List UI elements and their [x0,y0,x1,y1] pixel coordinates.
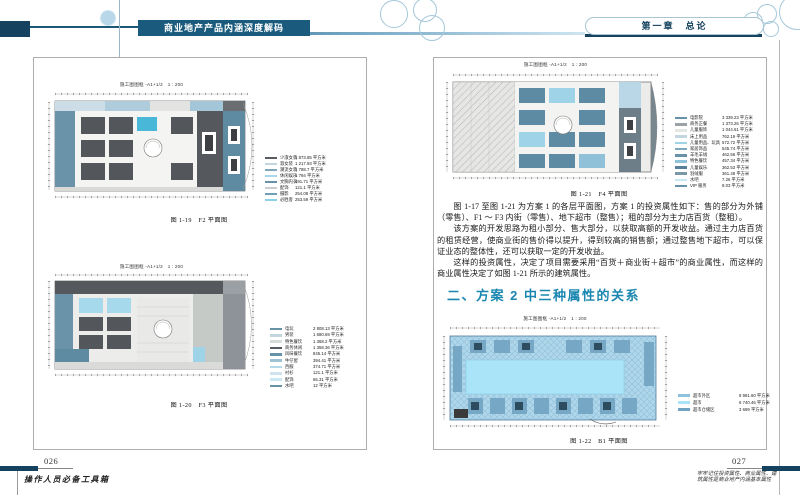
legend-swatch [675,179,687,182]
legend-value: 845.14 平方米 [313,351,340,357]
legend-swatch [270,328,282,331]
floor-plan-f3 [45,271,258,387]
deco-circle [380,0,408,28]
legend-label: 水吧 [285,383,313,389]
legend-swatch [265,199,277,202]
legend-swatch [675,123,687,126]
legend-b1: 超市外区 8 981.60 平方米 超市 6 740.46 平方米 超市仓储区 … [678,392,770,413]
legend-swatch [265,169,277,172]
legend-swatch [265,175,277,178]
legend-swatch [675,185,687,188]
legend-row: 超市仓储区 3 699 平方米 [678,406,770,413]
legend-swatch [265,193,277,196]
legend-value: 361.48 平方米 [722,171,749,177]
legend-label: 特色餐饮 [690,158,722,164]
legend-value: 1 368.2 平方米 [313,339,341,345]
legend-swatch [675,117,687,120]
legend-swatch [270,372,282,375]
legend-swatch [675,148,687,151]
legend-value: 762.19 平方米 [722,134,749,140]
left-margin-rule [17,470,18,495]
page-number-right: 027 [732,456,746,466]
legend-label: 配饰 [285,377,313,383]
legend-swatch [678,394,690,397]
legend-swatch [265,181,277,184]
legend-value: 1 044.61 平方米 [722,127,753,133]
legend-swatch [265,157,277,160]
legend-label: 床上用品 [690,134,722,140]
margin-note-line: 筑属性是商业地产内涵基本属性 [697,477,777,483]
caption-f4: 图 1-21 F4 平面图 [433,189,765,198]
legend-swatch [270,366,282,369]
legend-value: 394.41 平方米 [313,358,340,364]
chapter-label: 第一章 总论 [585,17,764,35]
legend-row: 超市外区 8 981.60 平方米 [678,392,770,399]
legend-value: 457.34 平方米 [722,158,749,164]
legend-swatch [265,163,277,166]
legend-value: 8 981.60 平方米 [739,393,770,399]
legend-value: 6 740.46 平方米 [739,400,770,406]
legend-value: 362.53 平方米 [722,165,749,171]
legend-value: 253.59 平方米 [295,197,322,203]
paragraph: 该方案的开发思路为租小部分、售大部分，以获取高额的开发收益。通过主力店百货的租赁… [437,223,763,257]
legend-f3: 电玩 2 808.13 平方米 男装 1 680.69 平方米 特色餐饮 1 3… [270,326,344,389]
legend-label: 风味餐饮 [285,351,313,357]
legend-value: 3 699 平方米 [739,407,764,413]
plan-title-f3: 施工图图框 -A1+1/2 1 : 200 [45,264,258,270]
deco-circle [419,15,445,41]
legend-label: 羽绒服 [690,171,722,177]
legend-f4: 电影院 3 339.23 平方米 商务正餐 1 373.26 平方米 儿童服饰 … [675,115,753,189]
legend-swatch [675,172,687,175]
legend-label: 儿童娱乐 [690,165,722,171]
legend-label: 超市 [693,400,739,406]
caption-f2: 图 1-19 F2 平面图 [33,215,365,224]
body-text: 图 1-17 至图 1-21 为方案 1 的各层平面图，方案 1 的投资属性如下… [437,201,763,279]
legend-swatch [270,353,282,356]
legend-row: 水吧 12 平方米 [270,383,344,389]
header-dot [100,10,116,26]
book-spread: 商业地产产品内涵深度解码 第一章 总论 施工图图框 -A1+1/2 1 : 20… [0,0,800,495]
legend-swatch [270,385,282,388]
caption-b1: 图 1-22 B1 平面图 [433,436,765,445]
plan-title-f2: 施工图图框 -A1+1/2 1 : 200 [45,82,258,88]
legend-value: 572.72 平方米 [722,140,749,146]
legend-label: 衬衫 [285,370,313,376]
footer-bar-left [0,466,38,471]
legend-swatch [270,340,282,343]
legend-swatch [675,129,687,132]
legend-swatch [678,401,690,404]
series-title: 操作人员必备工具箱 [24,474,110,485]
legend-value: 1 680.69 平方米 [313,332,344,338]
legend-label: 超市仓储区 [693,407,739,413]
legend-label: 儿童服饰 [690,127,722,133]
legend-swatch [675,154,687,157]
legend-swatch [675,160,687,163]
caption-f3: 图 1-20 F3 平面图 [33,400,365,409]
deco-circle [779,0,800,30]
legend-label: 男装 [285,332,313,338]
legend-value: 121.1 平方米 [313,370,338,376]
legend-swatch [678,408,690,411]
legend-label: 牛仔屋 [285,358,313,364]
book-title-banner: 商业地产产品内涵深度解码 [138,20,310,36]
header-left-block [0,21,30,37]
legend-swatch [270,347,282,350]
legend-swatch [270,334,282,337]
plan-title-f4: 施工图图框 -A1+1/2 1 : 200 [443,62,668,68]
legend-swatch [675,135,687,138]
page-number-left: 026 [44,456,58,466]
deco-circle [763,21,779,37]
legend-label: 儿童用品、玩具 [690,140,722,146]
legend-swatch [270,378,282,381]
legend-label: 特色餐饮 [285,339,313,345]
legend-row: 必胜客 253.59 平方米 [265,197,326,203]
paragraph: 这样的投资属性，决定了项目需要采用“百货＋商业街＋超市”的商业属性，而这样的商业… [437,257,763,279]
header-vertical-rule [119,0,120,58]
legend-swatch [675,142,687,145]
margin-note: 牢牢记住投资属性、商业属性、建 筑属性是商业地产内涵基本属性 [697,471,777,484]
legend-row: 超市 6 740.46 平方米 [678,399,770,406]
header-line-stub [30,26,140,28]
legend-swatch [265,187,277,190]
legend-swatch [270,359,282,362]
legend-f2: 少淑女装 1 873.85 平方米 淑女装 1 217.93 平方米 潮流女装 … [265,155,326,203]
legend-value: 65.31 平方米 [313,377,338,383]
footer-rule-right [727,468,762,469]
legend-swatch [675,166,687,169]
floor-plan-f4 [443,71,668,187]
right-margin-rule [779,40,780,495]
legend-value: 12 平方米 [313,383,332,389]
section-heading: 二、方案 2 中三种属性的关系 [447,285,640,304]
plan-title-b1: 施工图图框 -A1+1/2 1 : 200 [440,316,670,322]
legend-label: 必胜客 [280,197,295,203]
paragraph: 图 1-17 至图 1-21 为方案 1 的各层平面图，方案 1 的投资属性如下… [437,201,763,223]
footer-rule-left [38,468,73,469]
legend-label: 超市外区 [693,393,739,399]
floor-plan-f2 [45,90,258,208]
floor-plan-b1 [440,324,670,436]
